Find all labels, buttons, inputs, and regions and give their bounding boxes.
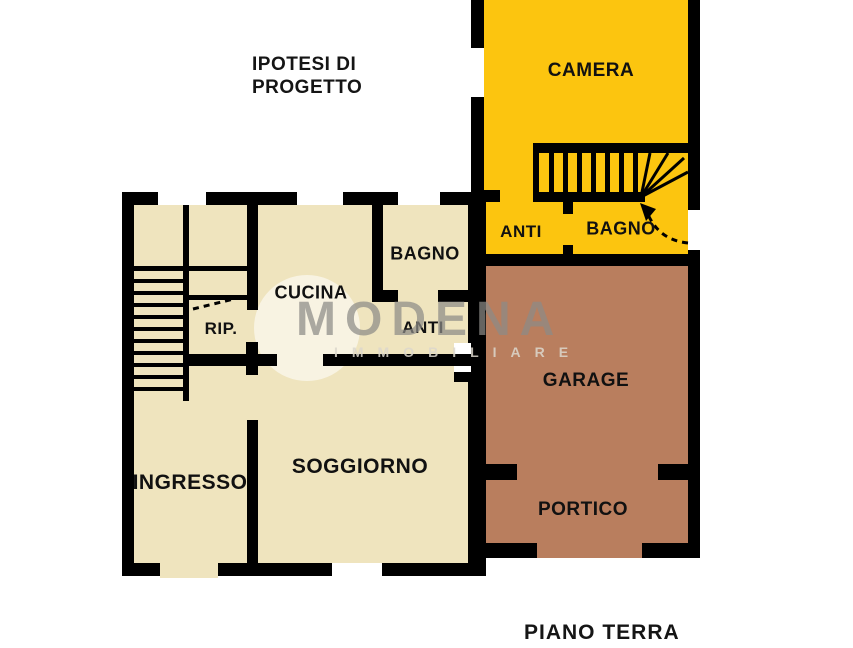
watermark-tagline: IMMOBILIARE — [334, 344, 582, 360]
floor-level-label: PIANO TERRA — [524, 621, 680, 645]
room-label-soggiorno: SOGGIORNO — [292, 455, 428, 479]
room-label-anti-upper: ANTI — [500, 222, 542, 242]
watermark-brand: MODENA — [296, 292, 563, 347]
room-label-bagno: BAGNO — [390, 244, 460, 265]
room-label-rip: RIP. — [205, 319, 238, 339]
room-label-portico: PORTICO — [538, 499, 628, 521]
room-label-ingresso: INGRESSO — [133, 471, 248, 495]
plan-title: IPOTESI DI PROGETTO — [252, 53, 362, 99]
room-label-bagno-upper: BAGNO — [586, 219, 656, 240]
floor-plan: CAMERA ANTI BAGNO BAGNO CUCINA RIP. ANTI… — [0, 0, 853, 648]
room-label-garage: GARAGE — [543, 370, 629, 392]
room-label-camera: CAMERA — [548, 60, 634, 82]
